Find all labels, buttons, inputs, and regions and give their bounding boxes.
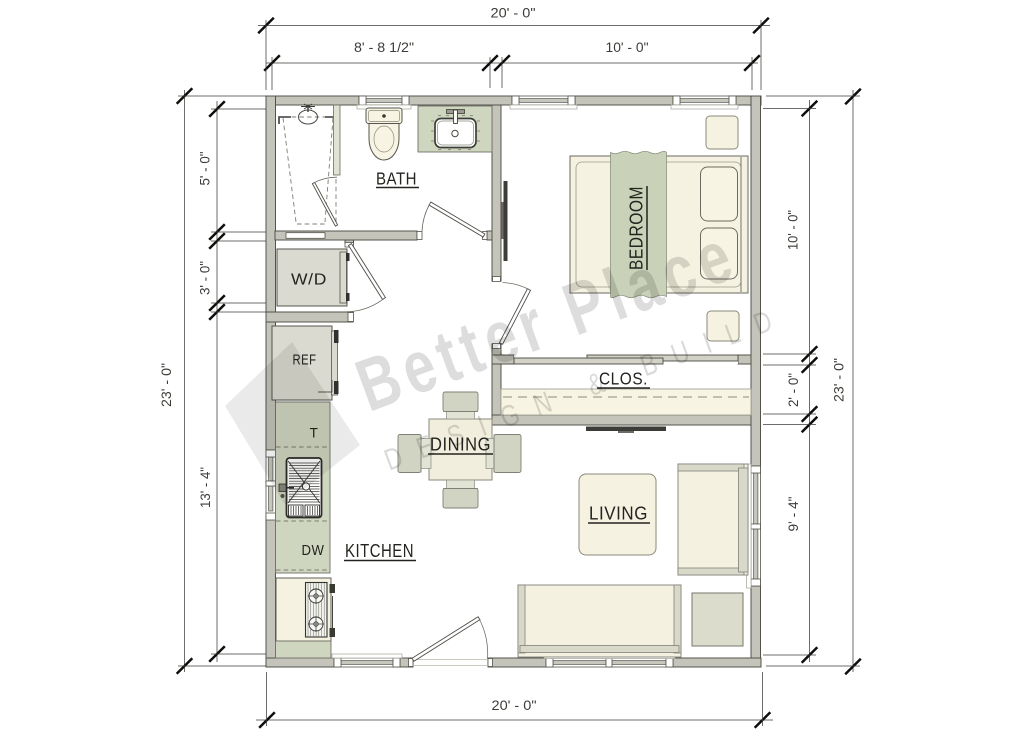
svg-text:KITCHEN: KITCHEN — [345, 541, 414, 561]
svg-text:8' - 8 1/2": 8' - 8 1/2" — [354, 39, 414, 55]
svg-text:2' - 0": 2' - 0" — [785, 373, 801, 407]
svg-text:13' - 4": 13' - 4" — [197, 467, 213, 508]
svg-text:BATH: BATH — [376, 169, 417, 189]
svg-text:9' - 4": 9' - 4" — [785, 496, 801, 531]
svg-text:23' - 0": 23' - 0" — [158, 363, 174, 407]
svg-text:3' - 0": 3' - 0" — [197, 261, 213, 295]
svg-text:10' - 0": 10' - 0" — [785, 210, 801, 250]
svg-text:LIVING: LIVING — [589, 504, 648, 524]
svg-text:20' - 0": 20' - 0" — [491, 5, 536, 21]
svg-text:23' - 0": 23' - 0" — [831, 358, 847, 402]
svg-text:5' - 0": 5' - 0" — [197, 151, 213, 185]
svg-text:DW: DW — [302, 543, 325, 559]
svg-text:10' - 0": 10' - 0" — [606, 39, 649, 55]
svg-text:W/D: W/D — [291, 272, 327, 289]
svg-text:20' - 0": 20' - 0" — [492, 697, 537, 713]
